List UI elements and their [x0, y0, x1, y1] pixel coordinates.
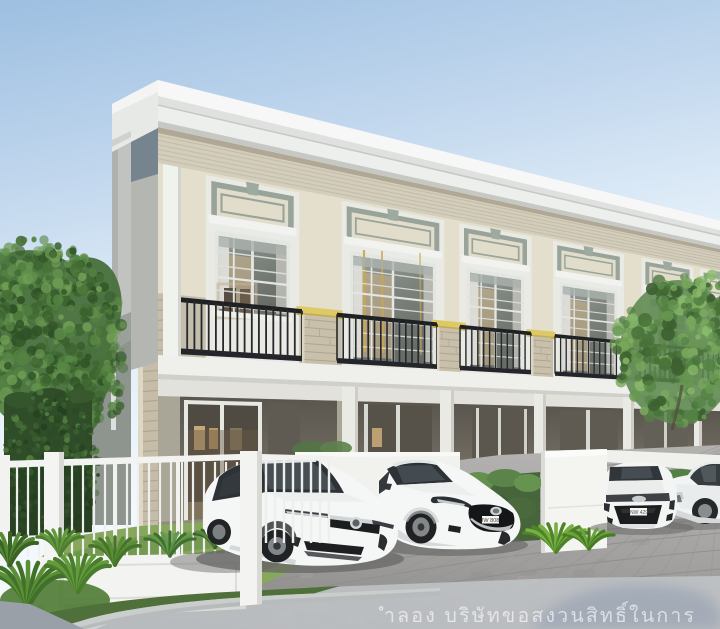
- svg-text:NW 429: NW 429: [630, 510, 648, 516]
- svg-text:ำลอง บริษัทขอสงวนสิทธิ์ในการ: ำลอง บริษัทขอสงวนสิทธิ์ในการ: [378, 601, 696, 627]
- svg-text:JW 808: JW 808: [481, 518, 500, 524]
